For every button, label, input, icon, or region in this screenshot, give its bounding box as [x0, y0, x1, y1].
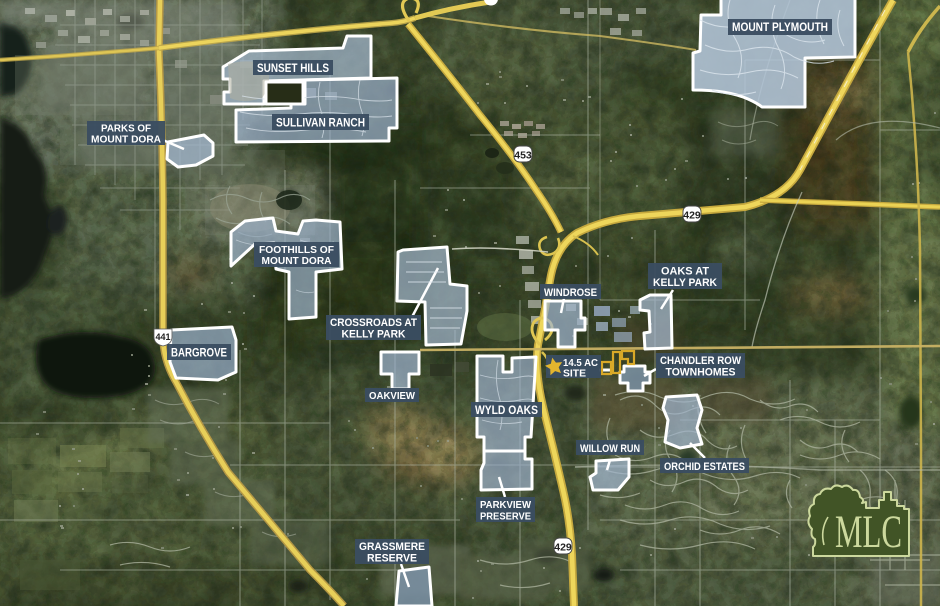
svg-text:ORCHID ESTATES: ORCHID ESTATES	[664, 461, 745, 473]
svg-text:KELLY PARK: KELLY PARK	[342, 329, 406, 341]
svg-text:429: 429	[554, 542, 572, 554]
svg-text:MOUNT DORA: MOUNT DORA	[262, 255, 332, 267]
svg-text:WILLOW RUN: WILLOW RUN	[580, 443, 640, 455]
svg-text:BARGROVE: BARGROVE	[171, 348, 227, 360]
svg-text:KELLY PARK: KELLY PARK	[653, 277, 717, 289]
svg-text:CROSSROADS AT: CROSSROADS AT	[330, 317, 417, 329]
svg-text:SUNSET HILLS: SUNSET HILLS	[257, 63, 329, 75]
svg-text:OAKS AT: OAKS AT	[661, 266, 709, 278]
svg-text:441: 441	[155, 332, 170, 342]
svg-text:PARKVIEW: PARKVIEW	[480, 499, 531, 511]
svg-text:SULLIVAN RANCH: SULLIVAN RANCH	[276, 116, 365, 130]
svg-text:GRASSMERE: GRASSMERE	[359, 541, 425, 553]
svg-text:MOUNT DORA: MOUNT DORA	[91, 134, 161, 146]
svg-text:MLC: MLC	[835, 506, 902, 558]
svg-text:WINDROSE: WINDROSE	[544, 287, 597, 299]
svg-text:WYLD OAKS: WYLD OAKS	[475, 405, 538, 417]
svg-text:TOWNHOMES: TOWNHOMES	[666, 367, 736, 379]
svg-text:CHANDLER ROW: CHANDLER ROW	[660, 355, 742, 367]
svg-text:RESERVE: RESERVE	[367, 553, 417, 565]
svg-text:OAKVIEW: OAKVIEW	[369, 390, 415, 402]
svg-text:PRESERVE: PRESERVE	[480, 511, 531, 523]
svg-text:453: 453	[514, 150, 532, 162]
svg-text:SITE: SITE	[563, 368, 586, 380]
svg-text:429: 429	[683, 210, 701, 222]
svg-text:MOUNT PLYMOUTH: MOUNT PLYMOUTH	[732, 22, 828, 34]
